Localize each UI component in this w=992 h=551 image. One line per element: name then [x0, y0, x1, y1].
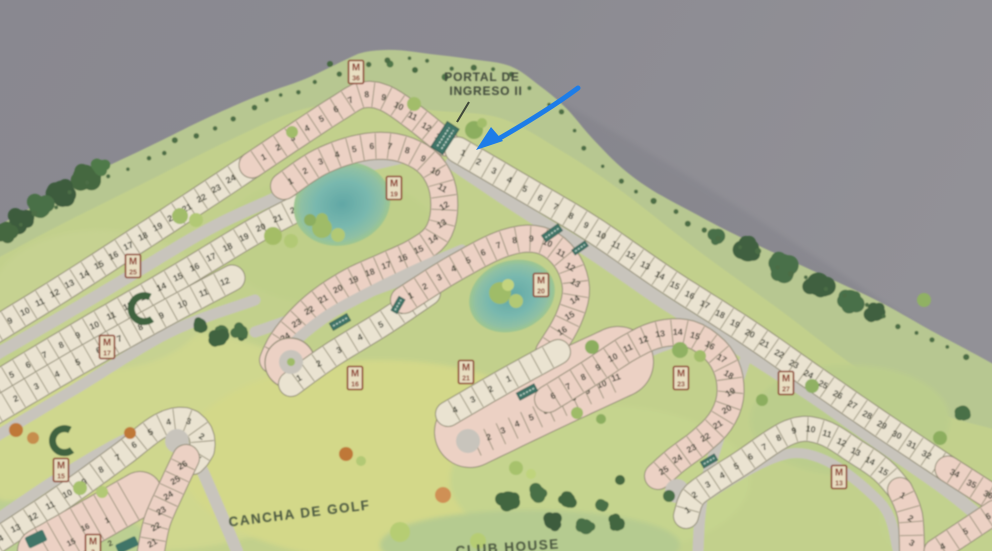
svg-text:9: 9	[529, 234, 534, 244]
svg-text:36: 36	[352, 76, 360, 83]
svg-text:16: 16	[351, 382, 359, 389]
svg-text:20: 20	[537, 289, 545, 296]
svg-text:INGRESO II: INGRESO II	[449, 84, 522, 98]
svg-text:M: M	[462, 363, 470, 374]
svg-text:M: M	[352, 63, 360, 74]
svg-text:6: 6	[369, 141, 375, 151]
svg-text:19: 19	[390, 192, 398, 199]
svg-text:M: M	[835, 468, 843, 479]
svg-text:M: M	[677, 369, 685, 380]
svg-text:15: 15	[57, 474, 65, 481]
svg-text:M: M	[57, 461, 65, 472]
svg-text:PORTAL DE: PORTAL DE	[444, 70, 519, 84]
svg-text:M: M	[537, 276, 545, 287]
svg-text:M: M	[89, 537, 97, 548]
svg-text:27: 27	[782, 387, 790, 394]
svg-text:8: 8	[364, 89, 370, 99]
svg-text:M: M	[782, 374, 790, 385]
svg-text:23: 23	[677, 382, 685, 389]
svg-text:13: 13	[655, 328, 666, 339]
svg-text:17: 17	[103, 351, 111, 358]
svg-text:M: M	[390, 179, 398, 190]
svg-text:M: M	[129, 257, 137, 268]
svg-text:14: 14	[673, 327, 683, 337]
svg-text:21: 21	[462, 376, 470, 383]
svg-text:25: 25	[129, 270, 137, 277]
svg-text:13: 13	[835, 481, 843, 488]
svg-text:M: M	[103, 338, 111, 349]
svg-text:M: M	[351, 369, 359, 380]
svg-text:10: 10	[805, 423, 816, 434]
